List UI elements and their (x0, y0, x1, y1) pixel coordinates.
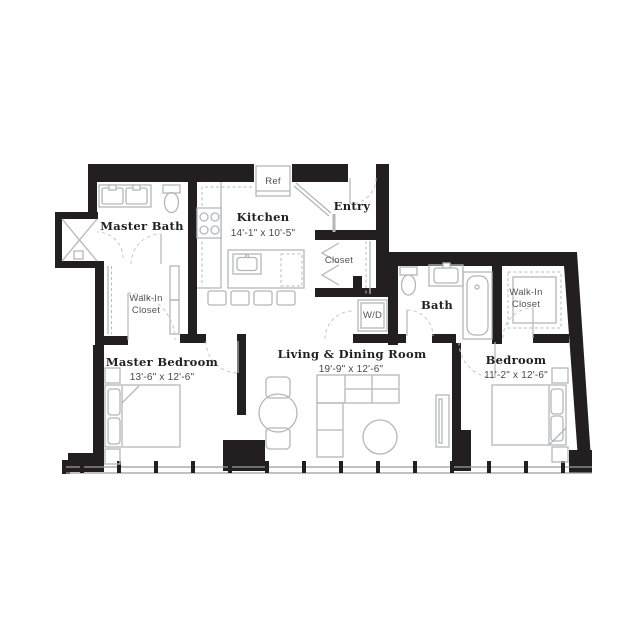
stove-icon (197, 208, 221, 238)
bed-icon (492, 385, 566, 445)
living-dining-furniture (259, 375, 449, 457)
toilet-icon (163, 185, 180, 213)
hall-closet-label: Closet (325, 255, 353, 266)
bedroom-walk-in-closet-label-line2: Closet (512, 299, 540, 310)
bar-stools (208, 291, 295, 305)
master-bedroom-label: Master Bedroom (106, 355, 218, 369)
pantry-door (294, 183, 331, 216)
washer-dryer-label: W/D (363, 310, 382, 321)
shower-icon (62, 219, 97, 261)
floor-plan-page: Master Bath Kitchen 14'-1" x 10'-5" Entr… (0, 0, 639, 639)
kitchen-label: Kitchen (237, 210, 290, 224)
nightstand (105, 368, 120, 383)
tv-console-icon (436, 395, 449, 447)
window-wall (62, 460, 592, 474)
master-bedroom-dims: 13'-6" x 12'-6" (130, 372, 195, 383)
kitchen-island (228, 250, 304, 288)
hall-door-arc (325, 311, 353, 339)
floor-plan: Master Bath Kitchen 14'-1" x 10'-5" Entr… (0, 0, 639, 639)
bath-label: Bath (421, 298, 453, 312)
nightstand (552, 447, 568, 462)
bedroom-label: Bedroom (486, 353, 547, 367)
shower-door-arc (97, 232, 123, 258)
bedroom-walk-in-closet-label-line1: Walk-In (509, 287, 542, 298)
toilet-icon (400, 267, 417, 295)
master-walk-in-closet-label-line2: Closet (132, 305, 160, 316)
entry-label: Entry (334, 199, 371, 213)
living-dining-label: Living & Dining Room (278, 347, 427, 361)
master-bath-door-arc (131, 234, 161, 264)
bath-vanity (429, 263, 463, 286)
master-bath-label: Master Bath (100, 219, 184, 233)
kitchen-dims: 14'-1" x 10'-5" (231, 228, 296, 239)
living-dining-dims: 19'-9" x 12'-6" (319, 364, 384, 375)
master-walk-in-closet-label-line1: Walk-In (129, 293, 162, 304)
walls (55, 164, 592, 473)
nightstand (552, 368, 568, 383)
bath-door-arc (407, 310, 433, 336)
bedroom-dims: 11'-2" x 12'-6" (484, 370, 548, 381)
refrigerator-label: Ref (265, 176, 281, 187)
bathtub-icon (463, 272, 492, 339)
dining-table-icon (259, 377, 297, 449)
coffee-table-icon (363, 420, 397, 454)
sofa-icon (317, 375, 399, 457)
hall-closet-fixtures (322, 241, 370, 294)
bed-icon (105, 385, 180, 447)
